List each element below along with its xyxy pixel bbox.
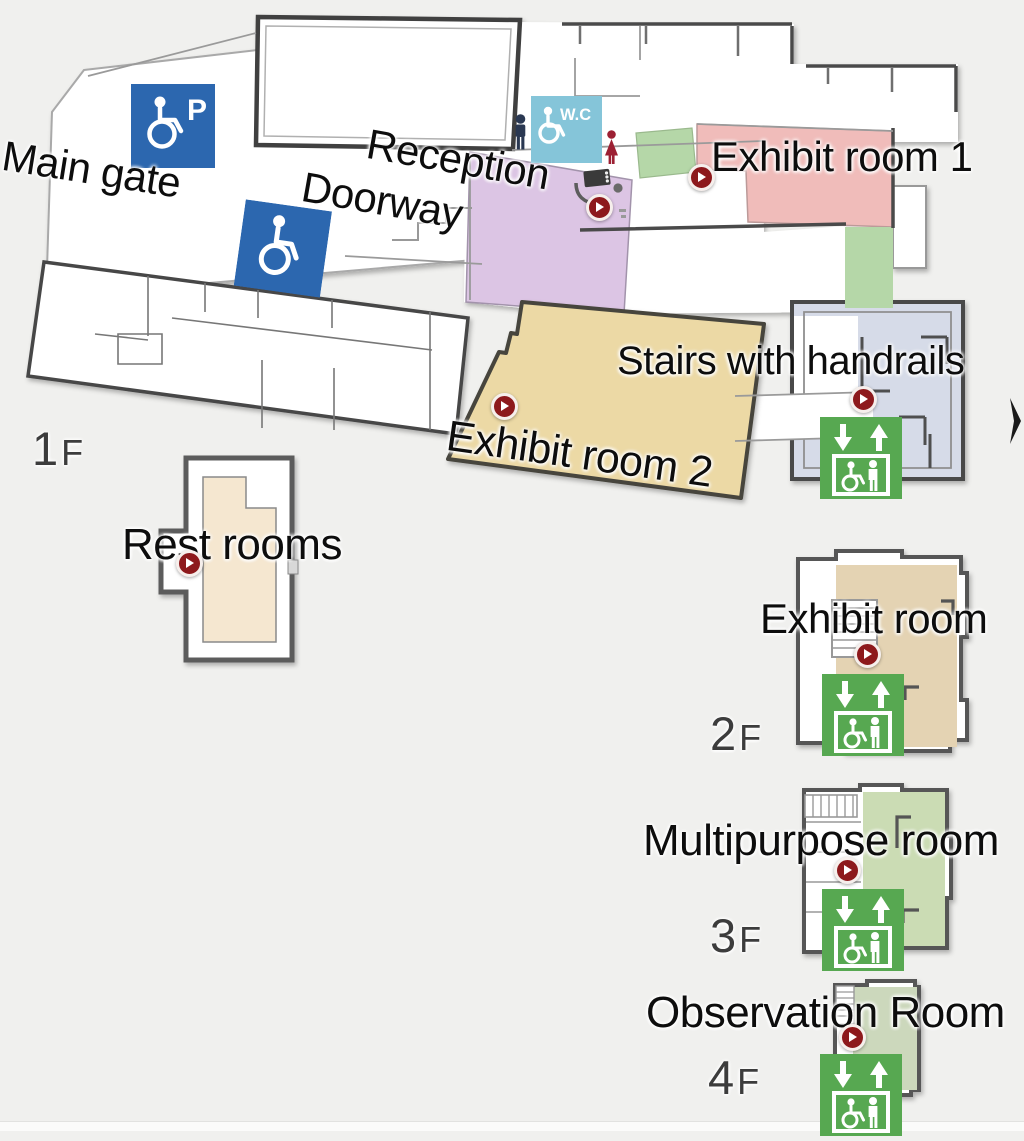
label-stairs-with-handrails: Stairs with handrails	[617, 340, 964, 382]
arrow-icon	[1010, 398, 1022, 449]
label-exhibit-room-1: Exhibit room 1	[711, 135, 972, 179]
label-observation-room: Observation Room	[646, 990, 1005, 1036]
corridor-green-stairs	[845, 227, 893, 308]
play-marker-reception[interactable]	[586, 194, 613, 221]
play-marker-multipurpose-room-3f[interactable]	[834, 857, 861, 884]
parking-letter: P	[187, 94, 207, 127]
label-exhibit-room-2f: Exhibit room	[760, 597, 987, 641]
annex-room	[893, 186, 926, 268]
women-icon	[604, 130, 619, 169]
elevator-icon-4f	[820, 1054, 902, 1141]
elevator-icon-3f	[822, 889, 904, 976]
play-marker-exhibit-room-2f[interactable]	[854, 641, 881, 668]
floor-label-1f: 1F	[32, 421, 83, 476]
play-marker-exhibit-room-1[interactable]	[688, 164, 715, 191]
play-marker-rest-rooms[interactable]	[176, 550, 203, 577]
floor-label-3f: 3F	[710, 908, 761, 963]
elevator-icon-1f	[820, 417, 902, 504]
elevator-icon-2f	[822, 674, 904, 761]
play-marker-stairs-1f[interactable]	[850, 386, 877, 413]
wheelchair-icon	[233, 199, 332, 302]
floor-label-2f: 2F	[710, 706, 761, 761]
play-marker-observation-room-4f[interactable]	[839, 1024, 866, 1051]
wc-text: W.C	[560, 106, 591, 124]
play-marker-exhibit-room-2[interactable]	[491, 393, 518, 420]
facility-map: P W.C	[0, 0, 1024, 1130]
label-multipurpose-room: Multipurpose room	[643, 818, 999, 864]
label-rest-rooms: Rest rooms	[122, 522, 342, 568]
corridor-green-wc	[636, 128, 696, 178]
floor-label-4f: 4F	[708, 1050, 759, 1105]
